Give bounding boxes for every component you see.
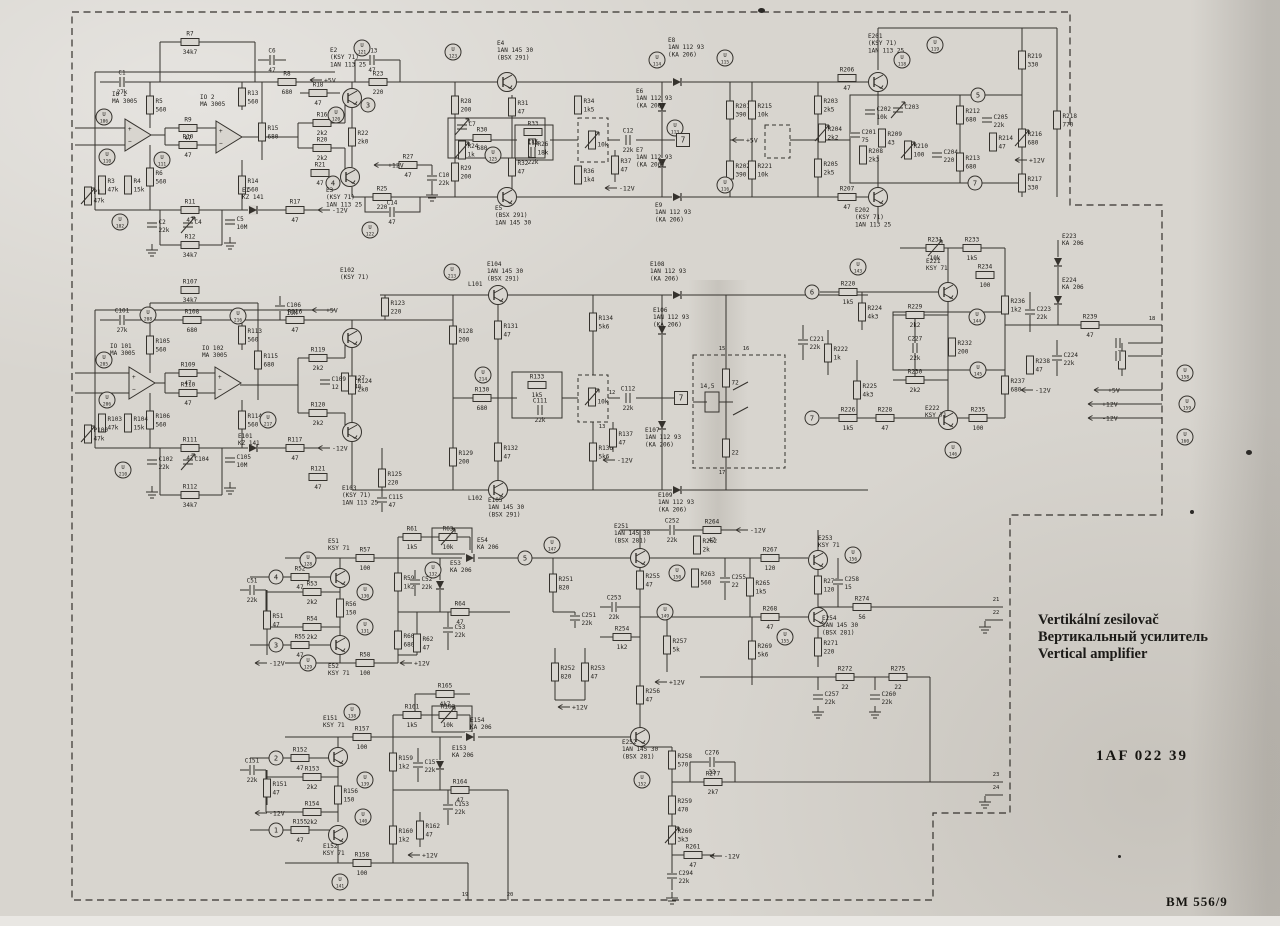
svg-text:216: 216 xyxy=(234,318,242,324)
transistor xyxy=(331,569,350,588)
svg-text:C224: C224 xyxy=(1064,352,1079,359)
svg-text:1AN 112 93: 1AN 112 93 xyxy=(645,434,682,441)
svg-text:(BSX 291): (BSX 291) xyxy=(487,275,520,282)
svg-text:1: 1 xyxy=(274,827,278,835)
transistor xyxy=(869,188,888,207)
capacitor-C7: C7 xyxy=(455,119,476,135)
svg-text:47: 47 xyxy=(646,697,654,704)
power-label: -12V xyxy=(603,457,633,465)
svg-text:2k2: 2k2 xyxy=(307,819,318,826)
svg-text:U: U xyxy=(900,55,903,61)
resistor-R25: R25220 xyxy=(373,186,391,212)
power-label: +12V xyxy=(558,704,588,712)
svg-text:C260: C260 xyxy=(882,691,897,698)
svg-text:E105: E105 xyxy=(488,497,503,504)
svg-text:E224: E224 xyxy=(1062,277,1077,284)
transistor xyxy=(498,73,517,92)
diode xyxy=(435,760,445,770)
svg-text:R158: R158 xyxy=(355,852,370,859)
component-label: E2541AN 145 30(BSX 281) xyxy=(822,615,859,636)
svg-text:U: U xyxy=(675,568,678,574)
svg-text:E7: E7 xyxy=(636,147,644,154)
svg-text:15: 15 xyxy=(845,584,853,591)
svg-text:47: 47 xyxy=(646,582,654,589)
svg-text:R13: R13 xyxy=(248,90,259,97)
resistor-R254: R2541k2 xyxy=(613,626,631,652)
svg-text:C252: C252 xyxy=(665,518,680,525)
svg-text:56: 56 xyxy=(858,614,866,621)
svg-text:E3: E3 xyxy=(326,187,334,194)
svg-text:R226: R226 xyxy=(841,407,856,414)
svg-text:E251: E251 xyxy=(614,523,629,530)
capacitor-C111: C11122k xyxy=(533,398,548,425)
svg-text:1AN 112 93: 1AN 112 93 xyxy=(650,268,687,275)
capacitor-C204: C204220 xyxy=(932,149,958,164)
svg-text:123: 123 xyxy=(449,54,457,60)
resistor-unmarked: 10k xyxy=(585,131,609,149)
svg-text:47: 47 xyxy=(291,327,299,334)
svg-text:E8: E8 xyxy=(668,37,676,44)
svg-text:1k: 1k xyxy=(834,355,842,362)
capacitor-C203: C203 xyxy=(891,102,919,118)
terminal-3: 3 xyxy=(269,638,283,652)
svg-text:R132: R132 xyxy=(504,445,519,452)
svg-text:+: + xyxy=(132,374,136,381)
svg-text:3k3: 3k3 xyxy=(678,837,689,844)
capacitor-C104: C104 xyxy=(181,454,209,470)
capacitor-C112: C11222k xyxy=(621,386,636,413)
svg-text:1AN 112 93: 1AN 112 93 xyxy=(668,44,705,51)
svg-text:+12V: +12V xyxy=(572,704,588,712)
resistor-R7: R734k7 xyxy=(181,31,199,57)
resistor-unmarked: 22 xyxy=(723,439,740,457)
svg-text:47: 47 xyxy=(504,454,512,461)
svg-text:E5: E5 xyxy=(495,205,503,212)
testpoint-U110: U110 xyxy=(99,149,115,165)
svg-text:U: U xyxy=(102,355,105,361)
svg-text:C109: C109 xyxy=(332,376,347,383)
capacitor-C205: C20522k xyxy=(982,114,1008,129)
svg-text:C251: C251 xyxy=(582,612,597,619)
svg-text:+5V: +5V xyxy=(746,137,758,145)
svg-text:22k: 22k xyxy=(159,227,170,234)
pin-12: 12 xyxy=(609,390,616,396)
svg-text:33: 33 xyxy=(708,769,716,776)
svg-text:E107: E107 xyxy=(645,427,660,434)
svg-text:R109: R109 xyxy=(181,362,196,369)
svg-text:R157: R157 xyxy=(355,726,370,733)
svg-text:2k5: 2k5 xyxy=(824,170,835,177)
resistor-R160: R1601k2 xyxy=(390,826,414,844)
svg-text:U: U xyxy=(655,55,658,61)
svg-text:47: 47 xyxy=(388,219,396,226)
resistor-R204: R2042k2 xyxy=(815,124,842,142)
component-label: E201(KSY 71)1AN 113 25 xyxy=(868,33,905,54)
testpoint-U144: U144 xyxy=(969,309,985,325)
svg-text:560: 560 xyxy=(156,107,167,114)
svg-text:5: 5 xyxy=(976,92,980,100)
svg-text:206: 206 xyxy=(103,402,111,408)
svg-text:U: U xyxy=(306,658,309,664)
svg-text:47: 47 xyxy=(389,502,397,509)
power-label: -12V xyxy=(710,853,740,861)
resistor-R121: R12147 xyxy=(309,466,327,492)
svg-text:34k7: 34k7 xyxy=(183,297,198,304)
svg-text:159: 159 xyxy=(1183,406,1191,412)
svg-text:47: 47 xyxy=(273,790,281,797)
svg-text:R239: R239 xyxy=(1083,314,1098,321)
svg-text:R205: R205 xyxy=(824,161,839,168)
transistor xyxy=(329,748,348,767)
resistor-R54: R542k2 xyxy=(303,616,321,642)
svg-text:128: 128 xyxy=(304,562,312,568)
resistor-R268: R26847 xyxy=(761,606,779,632)
svg-text:100: 100 xyxy=(914,152,925,159)
resistor-R133: R1331k5 xyxy=(528,374,546,400)
testpoint-U128: U128 xyxy=(300,552,316,568)
terminal-1: 1 xyxy=(269,823,283,837)
svg-text:U: U xyxy=(363,622,366,628)
component-label: E103(KSY 71)1AN 113 25 xyxy=(342,485,379,506)
testpoint-U122: U122 xyxy=(362,222,378,238)
svg-text:1AN 145 30: 1AN 145 30 xyxy=(622,746,659,753)
svg-text:1k5: 1k5 xyxy=(407,722,418,729)
svg-text:22: 22 xyxy=(894,684,902,691)
diode xyxy=(672,485,682,495)
svg-text:C2: C2 xyxy=(159,219,167,226)
resistor-unmarked: 10k xyxy=(585,388,609,406)
svg-text:R10: R10 xyxy=(183,134,194,141)
svg-text:132: 132 xyxy=(429,572,437,578)
svg-text:146: 146 xyxy=(949,452,957,458)
svg-text:KSY 71: KSY 71 xyxy=(323,850,345,857)
svg-text:U: U xyxy=(146,310,149,316)
svg-text:C204: C204 xyxy=(944,149,959,156)
svg-text:129: 129 xyxy=(304,665,312,671)
resistor-R214: R21447 xyxy=(990,133,1014,151)
resistor-R108: R108680 xyxy=(183,309,201,335)
resistor-R107: R10734k7 xyxy=(181,279,199,305)
resistor-R255: R25547 xyxy=(637,571,661,589)
testpoint-U152: U152 xyxy=(634,772,650,788)
svg-text:120: 120 xyxy=(765,565,776,572)
svg-text:140: 140 xyxy=(359,819,367,825)
svg-text:15k: 15k xyxy=(134,187,145,194)
connector-square-7: 7 xyxy=(675,392,688,405)
svg-text:2k7: 2k7 xyxy=(708,789,719,796)
resistor-R105: R105560 xyxy=(147,336,171,354)
resistor-R222: R2221k xyxy=(825,344,849,362)
svg-text:47: 47 xyxy=(766,624,774,631)
svg-text:4k3: 4k3 xyxy=(863,392,874,399)
capacitor-C10: C1022k xyxy=(427,172,450,187)
svg-text:R110: R110 xyxy=(181,382,196,389)
svg-text:R275: R275 xyxy=(891,666,906,673)
svg-text:47: 47 xyxy=(689,862,697,869)
svg-text:R37: R37 xyxy=(621,158,632,165)
svg-text:1k5: 1k5 xyxy=(843,299,854,306)
svg-text:−: − xyxy=(219,140,223,147)
diode xyxy=(1053,295,1063,305)
svg-text:-12V: -12V xyxy=(269,660,285,668)
scanned-schematic-page: R734k7R8680R5560R6560R13560R14560R15680R… xyxy=(0,0,1280,926)
svg-text:U: U xyxy=(361,812,364,818)
svg-text:U: U xyxy=(851,550,854,556)
diode xyxy=(248,205,258,215)
svg-text:KZ 141: KZ 141 xyxy=(238,440,260,447)
resistor-R218: R218770 xyxy=(1054,111,1078,129)
svg-text:R212: R212 xyxy=(966,108,981,115)
resistor-R234: R234100 xyxy=(976,264,994,290)
svg-text:+: + xyxy=(128,126,132,133)
svg-text:MA 3005: MA 3005 xyxy=(112,98,138,105)
resistor-R134: R1345k6 xyxy=(590,313,614,331)
component-label: IO 2MA 3005 xyxy=(200,94,226,108)
component-label: E51KSY 71 xyxy=(328,538,350,552)
transistor xyxy=(631,549,650,568)
svg-text:330: 330 xyxy=(1028,185,1039,192)
resistor-R36: R361k4 xyxy=(575,166,595,184)
capacitor-C115: C11547 xyxy=(377,494,403,509)
resistor-R213: R213680 xyxy=(957,153,981,171)
testpoint-U145: U145 xyxy=(970,362,986,378)
resistor-R265: R2651k5 xyxy=(747,578,771,596)
svg-text:200: 200 xyxy=(958,349,969,356)
testpoint-U160: U160 xyxy=(1177,429,1193,445)
pin-22: 22 xyxy=(993,610,1000,616)
svg-text:47: 47 xyxy=(843,204,851,211)
svg-text:R220: R220 xyxy=(841,281,856,288)
svg-text:R62: R62 xyxy=(423,636,434,643)
svg-text:C223: C223 xyxy=(1037,306,1052,313)
svg-text:KSY 71: KSY 71 xyxy=(328,545,350,552)
resistor-R239: R23947 xyxy=(1081,314,1099,340)
svg-text:R33: R33 xyxy=(528,121,539,128)
svg-text:111: 111 xyxy=(158,162,166,168)
svg-text:(KA 206): (KA 206) xyxy=(645,441,674,448)
svg-text:U: U xyxy=(160,155,163,161)
testpoint-U208: U208 xyxy=(140,307,156,323)
svg-text:12: 12 xyxy=(609,390,616,396)
resistor-R117: R11747 xyxy=(286,437,304,463)
svg-text:13: 13 xyxy=(599,424,606,430)
svg-text:U: U xyxy=(856,262,859,268)
svg-text:R131: R131 xyxy=(504,323,519,330)
svg-text:R29: R29 xyxy=(461,165,472,172)
svg-text:14,5: 14,5 xyxy=(700,383,715,390)
svg-text:570: 570 xyxy=(678,762,689,769)
testpoint-U138: U138 xyxy=(344,704,360,720)
resistor-R128: R128200 xyxy=(450,326,474,344)
testpoint-U102: U102 xyxy=(112,214,128,230)
resistor-R12: R1234k7 xyxy=(181,234,199,260)
svg-text:820: 820 xyxy=(559,585,570,592)
svg-text:R204: R204 xyxy=(828,126,843,133)
capacitor-C6: C647 xyxy=(268,48,276,75)
svg-text:R57: R57 xyxy=(360,547,371,554)
svg-text:560: 560 xyxy=(248,337,259,344)
svg-text:R54: R54 xyxy=(307,616,318,623)
svg-text:R268: R268 xyxy=(763,606,778,613)
svg-text:560: 560 xyxy=(156,422,167,429)
resistor-R259: R259470 xyxy=(669,796,693,814)
svg-text:208: 208 xyxy=(144,317,152,323)
svg-text:R238: R238 xyxy=(1036,358,1051,365)
svg-text:E106: E106 xyxy=(653,307,668,314)
svg-text:220: 220 xyxy=(391,309,402,316)
svg-text:U: U xyxy=(121,465,124,471)
svg-text:12: 12 xyxy=(332,384,340,391)
resistor-R230: R2302k2 xyxy=(906,369,924,395)
svg-text:3: 3 xyxy=(274,642,278,650)
svg-text:100: 100 xyxy=(357,744,368,751)
resistor-R217: R217330 xyxy=(1019,174,1043,192)
svg-text:R105: R105 xyxy=(156,338,171,345)
resistor-R209: R20943 xyxy=(879,129,903,147)
resistor-R252: R252820 xyxy=(552,663,576,681)
svg-text:150: 150 xyxy=(673,575,681,581)
svg-text:R123: R123 xyxy=(391,300,406,307)
svg-text:C151: C151 xyxy=(245,758,260,765)
svg-text:1AN 145 30: 1AN 145 30 xyxy=(487,268,524,275)
terminal-7: 7 xyxy=(968,176,982,190)
testpoint-U156: U156 xyxy=(845,547,861,563)
resistor-R8: R8680 xyxy=(278,71,296,97)
svg-text:E222: E222 xyxy=(925,405,940,412)
svg-text:106: 106 xyxy=(100,119,108,125)
testpoint-U214: U214 xyxy=(475,367,491,383)
svg-text:114: 114 xyxy=(653,62,661,68)
resistor-R161: R1611k5 xyxy=(403,704,421,730)
svg-text:820: 820 xyxy=(561,674,572,681)
component-label: E153KA 206 xyxy=(452,745,474,759)
svg-text:22k: 22k xyxy=(425,767,436,774)
svg-text:1AN 113 25: 1AN 113 25 xyxy=(342,499,379,506)
svg-text:R115: R115 xyxy=(264,353,279,360)
svg-text:(KA 206): (KA 206) xyxy=(655,216,684,223)
svg-text:KA 206: KA 206 xyxy=(1062,284,1084,291)
resistor-R267: R267120 xyxy=(761,547,779,573)
component-label: E101KZ 141 xyxy=(238,433,260,447)
testpoint-U146: U146 xyxy=(945,442,961,458)
svg-text:E223: E223 xyxy=(1062,233,1077,240)
svg-text:R3: R3 xyxy=(108,178,116,185)
terminal-2: 2 xyxy=(269,751,283,765)
svg-text:R155: R155 xyxy=(293,819,308,826)
svg-text:C101: C101 xyxy=(115,308,130,315)
resistor-R3: R347k xyxy=(99,176,119,194)
testpoint-U150: U150 xyxy=(669,565,685,581)
svg-text:47: 47 xyxy=(296,837,304,844)
svg-text:22k: 22k xyxy=(810,344,821,351)
resistor-R269: R2695k6 xyxy=(749,641,773,659)
svg-text:U: U xyxy=(118,217,121,223)
svg-text:C4: C4 xyxy=(195,219,203,226)
opamp: +− xyxy=(125,119,151,151)
scan-speck xyxy=(1118,855,1121,858)
svg-text:47: 47 xyxy=(999,144,1007,151)
testpoint-U125: U125 xyxy=(485,147,501,163)
svg-text:−: − xyxy=(218,386,222,393)
resistor-R104: R10415k xyxy=(125,414,149,432)
svg-text:2k: 2k xyxy=(703,547,711,554)
svg-text:22k: 22k xyxy=(1064,360,1075,367)
title-russian: Вертикальный усилитель xyxy=(1038,629,1208,646)
svg-text:R269: R269 xyxy=(758,643,773,650)
capacitor-unmarked xyxy=(1115,351,1121,361)
svg-text:(KA 206): (KA 206) xyxy=(650,275,679,282)
svg-text:R162: R162 xyxy=(426,823,441,830)
svg-text:47: 47 xyxy=(314,100,322,107)
svg-text:E154: E154 xyxy=(470,717,485,724)
doc-number: BM 556/9 xyxy=(1166,894,1228,910)
svg-text:C202: C202 xyxy=(877,106,892,113)
resistor-R260: R2603k3 xyxy=(665,826,692,844)
svg-text:R117: R117 xyxy=(288,437,303,444)
svg-text:119: 119 xyxy=(931,47,939,53)
resistor-R157: R157100 xyxy=(353,726,371,752)
svg-text:R112: R112 xyxy=(183,484,198,491)
svg-text:U: U xyxy=(105,152,108,158)
svg-text:7: 7 xyxy=(973,180,977,188)
svg-text:47: 47 xyxy=(708,537,716,544)
svg-text:R14: R14 xyxy=(248,178,259,185)
svg-text:102: 102 xyxy=(116,224,124,230)
svg-text:MA 3005: MA 3005 xyxy=(110,350,136,357)
pin-13: 13 xyxy=(599,424,606,430)
svg-text:U: U xyxy=(363,587,366,593)
svg-text:21: 21 xyxy=(993,597,1000,603)
resistor-R207: R20747 xyxy=(838,186,856,212)
resistor-R205: R2052k5 xyxy=(815,159,839,177)
svg-text:E103: E103 xyxy=(342,485,357,492)
scan-speck xyxy=(758,8,765,13)
svg-text:22: 22 xyxy=(993,610,1000,616)
svg-text:47: 47 xyxy=(184,152,192,159)
resistor-R257: R2575k xyxy=(664,636,688,654)
resistor-R22: R222k0 xyxy=(349,128,369,146)
resistor-R201: R201390 xyxy=(727,101,751,119)
svg-text:1AN 145 30: 1AN 145 30 xyxy=(488,504,525,511)
svg-text:U: U xyxy=(673,123,676,129)
resistor-R258: R258570 xyxy=(669,751,693,769)
svg-text:MA 3005: MA 3005 xyxy=(202,352,228,359)
svg-text:(KA 206): (KA 206) xyxy=(636,161,665,168)
svg-text:47: 47 xyxy=(273,622,281,629)
component-label: E54KA 206 xyxy=(477,537,499,551)
svg-text:R216: R216 xyxy=(1028,131,1043,138)
svg-text:IO 1: IO 1 xyxy=(112,91,127,98)
svg-text:U: U xyxy=(338,877,341,883)
resistor-R63: R6310k xyxy=(439,526,457,552)
resistor-R113: R113560 xyxy=(239,326,263,344)
svg-text:R119: R119 xyxy=(311,347,326,354)
resistor-R158: R158100 xyxy=(353,852,371,878)
svg-text:KZ 141: KZ 141 xyxy=(242,194,264,201)
resistor-R123: R123220 xyxy=(382,298,406,316)
svg-text:34k7: 34k7 xyxy=(183,49,198,56)
svg-text:1AN 145 30: 1AN 145 30 xyxy=(497,47,534,54)
svg-text:U: U xyxy=(266,415,269,421)
svg-text:L102: L102 xyxy=(468,495,483,502)
svg-text:15: 15 xyxy=(719,346,726,352)
resistor-R53: R532k2 xyxy=(303,581,321,607)
svg-text:C257: C257 xyxy=(825,691,840,698)
power-label: +12V xyxy=(655,679,685,687)
svg-text:390: 390 xyxy=(736,172,747,179)
svg-text:18k: 18k xyxy=(538,150,549,157)
svg-text:C221: C221 xyxy=(810,336,825,343)
